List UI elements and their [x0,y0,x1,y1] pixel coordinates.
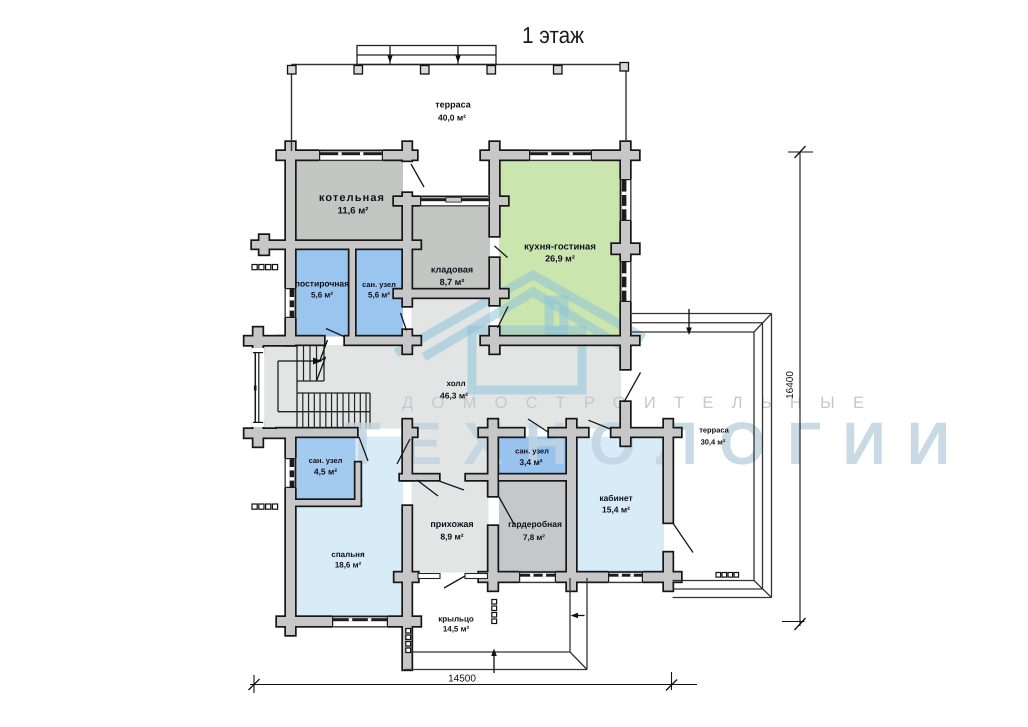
svg-text:прихожая: прихожая [430,519,473,529]
svg-text:кабинет: кабинет [599,493,632,503]
svg-text:18,6 м²: 18,6 м² [335,561,362,570]
svg-text:8,9 м²: 8,9 м² [440,532,463,542]
svg-text:5,6 м²: 5,6 м² [311,291,333,300]
svg-text:терраса: терраса [435,100,472,110]
svg-text:46,3 м²: 46,3 м² [440,391,468,401]
svg-text:сан. узел: сан. узел [309,456,343,465]
svg-text:26,9 м²: 26,9 м² [545,254,575,264]
svg-text:сан. узел: сан. узел [515,447,549,456]
svg-text:терраса: терраса [699,426,729,435]
svg-text:спальня: спальня [331,550,365,559]
svg-text:16400: 16400 [785,371,796,399]
svg-text:холл: холл [446,379,465,388]
svg-text:кухня-гостиная: кухня-гостиная [524,242,596,253]
svg-text:сан. узел: сан. узел [362,280,396,289]
svg-text:4,5 м²: 4,5 м² [314,467,337,477]
svg-text:8,7 м²: 8,7 м² [440,277,465,287]
svg-text:кладовая: кладовая [431,265,473,275]
svg-text:5,6 м²: 5,6 м² [368,291,390,300]
svg-text:14,5 м²: 14,5 м² [443,625,470,634]
svg-text:1 этаж: 1 этаж [522,22,585,48]
svg-text:15,4 м²: 15,4 м² [602,505,630,515]
svg-text:постирочная: постирочная [295,279,349,289]
svg-text:гардеробная: гардеробная [508,519,562,529]
svg-text:40,0 м²: 40,0 м² [438,113,466,123]
svg-text:3,4 м²: 3,4 м² [519,457,542,467]
svg-text:14500: 14500 [448,674,476,685]
svg-text:7,8 м²: 7,8 м² [523,533,545,542]
svg-text:котельная: котельная [319,192,385,204]
svg-text:крыльцо: крыльцо [438,615,474,624]
svg-text:30,4 м²: 30,4 м² [701,438,726,447]
svg-text:11,6 м²: 11,6 м² [338,206,369,217]
